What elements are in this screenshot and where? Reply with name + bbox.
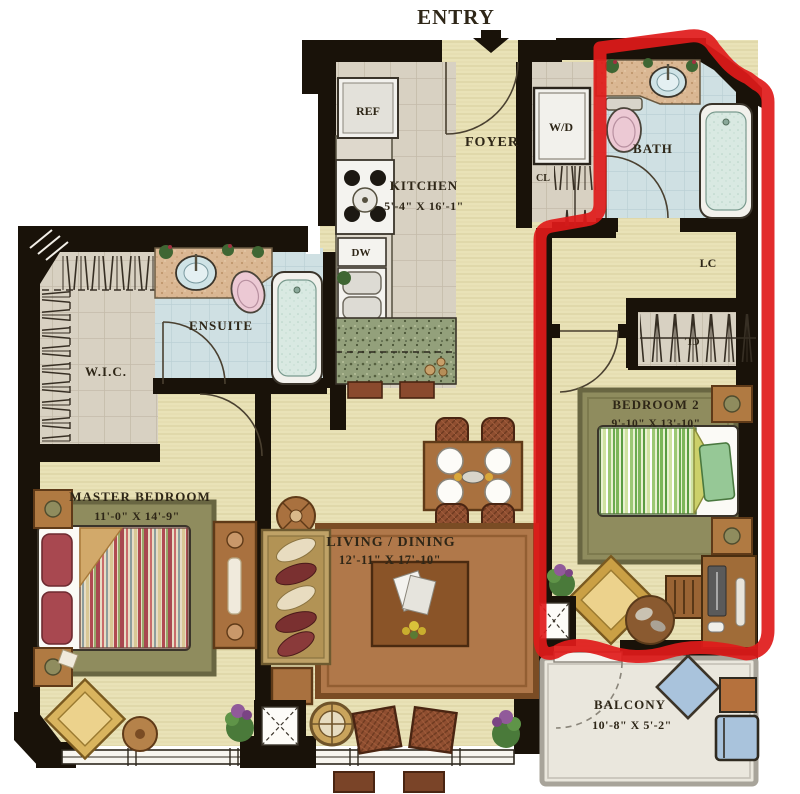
- wic-label: W.I.C.: [85, 364, 127, 379]
- stove: [336, 160, 394, 234]
- lc-label: LC: [700, 256, 717, 270]
- wic-hatch-top: [60, 256, 156, 290]
- master-label: MASTER BEDROOM: [69, 489, 210, 504]
- breakfast-bar: [336, 318, 456, 384]
- ensuite-tub: [272, 272, 322, 384]
- bathtub: [700, 104, 752, 218]
- spoke-table: [311, 703, 353, 745]
- exterior-notch: [306, 224, 320, 254]
- foyer-label: FOYER: [465, 135, 519, 150]
- master-nightstand: [34, 490, 72, 528]
- sofa-end-table: [272, 668, 312, 704]
- fridge-label: REF: [356, 104, 380, 118]
- floor-plan: ENTRY KITCHEN 5'-4" X 16'-1" FOYER W/D C…: [0, 0, 800, 794]
- living-dims: 12'-11" X 17'-10": [339, 553, 441, 567]
- master-bed: [38, 526, 190, 650]
- bedroom2-label: BEDROOM 2: [612, 397, 699, 412]
- bar-stool: [348, 382, 382, 398]
- master-round-table: [123, 717, 157, 751]
- bedroom2-bed: [598, 426, 738, 516]
- sofa: [262, 530, 330, 664]
- master-nightstand: [34, 648, 78, 686]
- ottoman: [409, 707, 456, 752]
- bar-stool: [400, 382, 434, 398]
- ensuite-label: ENSUITE: [189, 318, 253, 333]
- entry-label: ENTRY: [417, 5, 495, 29]
- bedroom2-closet-label: CL: [684, 335, 699, 347]
- living-column: [254, 700, 306, 752]
- wd-label: W/D: [549, 120, 573, 134]
- living-label: LIVING / DINING: [326, 535, 455, 550]
- bedroom2-dims: 9'-10" X 13'-10": [611, 418, 700, 430]
- balcony-label: BALCONY: [594, 697, 666, 712]
- exterior-planters: [334, 772, 444, 792]
- balcony-chair: [716, 716, 758, 760]
- balcony-table: [720, 678, 756, 712]
- counter-plant: [337, 271, 351, 285]
- balcony-dims: 10'-8" X 5'-2": [592, 718, 672, 732]
- bedroom2-desk: [702, 556, 756, 648]
- bedroom2-nightstand: [712, 386, 752, 422]
- ottoman: [353, 707, 401, 754]
- coffee-table: [372, 562, 468, 646]
- kitchen-dims: 5'-4" X 16'-1": [384, 199, 464, 213]
- master-dims: 11'-0" X 14'-9": [94, 509, 180, 523]
- bedroom2-round-rug: [626, 596, 674, 644]
- foyer-closet-label: CL: [536, 173, 550, 184]
- floor-plan-canvas: ENTRY KITCHEN 5'-4" X 16'-1" FOYER W/D C…: [0, 0, 800, 794]
- bath-label: BATH: [633, 141, 673, 156]
- kitchen-label: KITCHEN: [390, 178, 458, 193]
- dining-table: [424, 442, 522, 510]
- dishwasher-label: DW: [352, 247, 371, 259]
- master-dresser: [214, 522, 256, 648]
- wic-hatch-left: [42, 290, 70, 442]
- bedroom2-nightstand: [712, 518, 752, 554]
